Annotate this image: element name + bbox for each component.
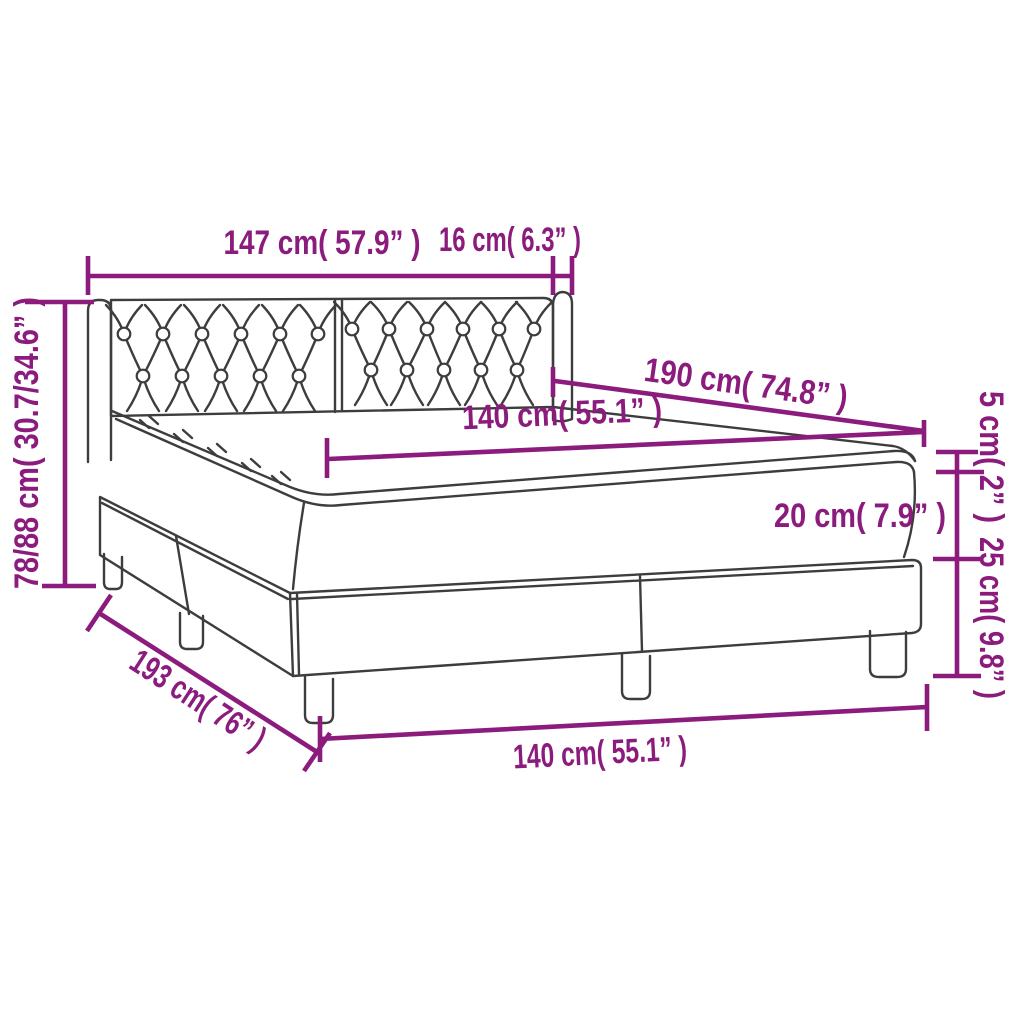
tuft-button (528, 323, 541, 336)
tuft-button (137, 370, 150, 383)
leg-right (870, 631, 906, 677)
mattress-left-corner (293, 503, 304, 589)
tuft-button (401, 364, 414, 377)
tuft-button (118, 328, 131, 341)
label-overall-height: 78/88 cm( 30.7/34.6” ) (8, 297, 46, 589)
product-dimension-diagram: 147 cm( 57.9” ) 16 cm( 6.3” ) 78/88 cm( … (0, 0, 1024, 1024)
headboard-panel-split (335, 300, 342, 412)
tuft-line (183, 430, 192, 438)
tuft-button (176, 370, 189, 383)
bed-dimension-drawing: 147 cm( 57.9” ) 16 cm( 6.3” ) 78/88 cm( … (0, 0, 1024, 1024)
tuft-button (215, 370, 228, 383)
headboard-left-wing (88, 300, 111, 462)
base-front-seam (640, 576, 642, 651)
tuft-button (421, 323, 434, 336)
tuft-line (281, 472, 290, 480)
tuft-button (274, 328, 287, 341)
tuft-line (217, 444, 226, 452)
label-mattress-width-top: 140 cm( 55.1” ) (461, 391, 662, 438)
label-bed-width-bottom: 140 cm( 55.1” ) (512, 729, 688, 776)
label-base-height: 25 cm( 9.8” ) (972, 537, 1010, 699)
headboard-tufting (106, 302, 552, 411)
tuft-button (365, 364, 378, 377)
leg-mid-front (622, 654, 650, 699)
label-topper-height: 5 cm( 2” ) (972, 391, 1010, 523)
tuft-button (312, 328, 325, 341)
label-mattress-height: 20 cm( 7.9” ) (774, 497, 946, 535)
tuft-button (383, 323, 396, 336)
tuft-button (235, 328, 248, 341)
headboard (88, 292, 572, 462)
tuft-line (251, 459, 260, 467)
tuft-button (457, 323, 470, 336)
label-headboard-side-depth: 16 cm( 6.3” ) (439, 221, 581, 259)
dimension-labels: 147 cm( 57.9” ) 16 cm( 6.3” ) 78/88 cm( … (8, 221, 1010, 777)
tuft-line (149, 416, 158, 424)
tuft-button (157, 328, 170, 341)
tuft-button (511, 364, 524, 377)
tuft-button (346, 323, 359, 336)
label-bed-length-side: 193 cm( 76” ) (123, 642, 273, 758)
tuft-button (196, 328, 209, 341)
tuft-button (293, 370, 306, 383)
base-front-face (290, 560, 921, 676)
label-headboard-width: 147 cm( 57.9” ) (224, 224, 421, 262)
tuft-button (493, 323, 506, 336)
tuft-button (438, 364, 451, 377)
tuft-button (475, 364, 488, 377)
tuft-button (254, 370, 267, 383)
base-corner-edge (290, 593, 299, 676)
mattress-seam-hatches (140, 416, 290, 484)
